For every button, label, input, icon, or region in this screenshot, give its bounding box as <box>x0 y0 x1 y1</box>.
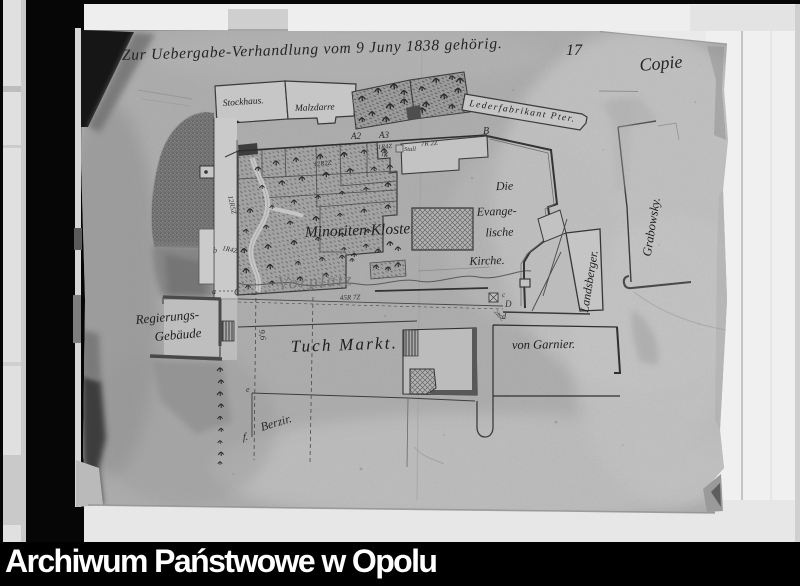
svg-text:Kirche.: Kirche. <box>468 253 505 268</box>
svg-text:17: 17 <box>566 42 583 59</box>
svg-text:A3: A3 <box>378 130 389 140</box>
svg-text:1R4Z: 1R4Z <box>378 143 393 151</box>
svg-text:Tuch Markt.: Tuch Markt. <box>290 333 398 356</box>
svg-text:A2: A2 <box>350 131 361 141</box>
svg-text:b: b <box>213 246 217 255</box>
svg-text:Stall: Stall <box>404 146 416 153</box>
svg-text:lische: lische <box>485 225 514 240</box>
svg-text:45R 7Z: 45R 7Z <box>340 293 361 302</box>
svg-text:von Garnier.: von Garnier. <box>512 337 575 352</box>
svg-text:Malzdarre: Malzdarre <box>294 103 335 114</box>
svg-text:D: D <box>504 299 512 309</box>
svg-text:Vorplatz: Vorplatz <box>277 269 354 293</box>
svg-text:7R 2Z: 7R 2Z <box>421 139 439 148</box>
svg-text:1Z: 1Z <box>381 151 388 158</box>
svg-text:12R2Z: 12R2Z <box>314 160 332 168</box>
svg-text:a: a <box>212 287 216 296</box>
svg-text:Die: Die <box>495 179 514 194</box>
svg-text:Evange-: Evange- <box>475 203 516 218</box>
svg-text:Copie: Copie <box>639 51 684 75</box>
svg-text:e: e <box>246 385 250 394</box>
svg-text:f.: f. <box>243 432 248 443</box>
